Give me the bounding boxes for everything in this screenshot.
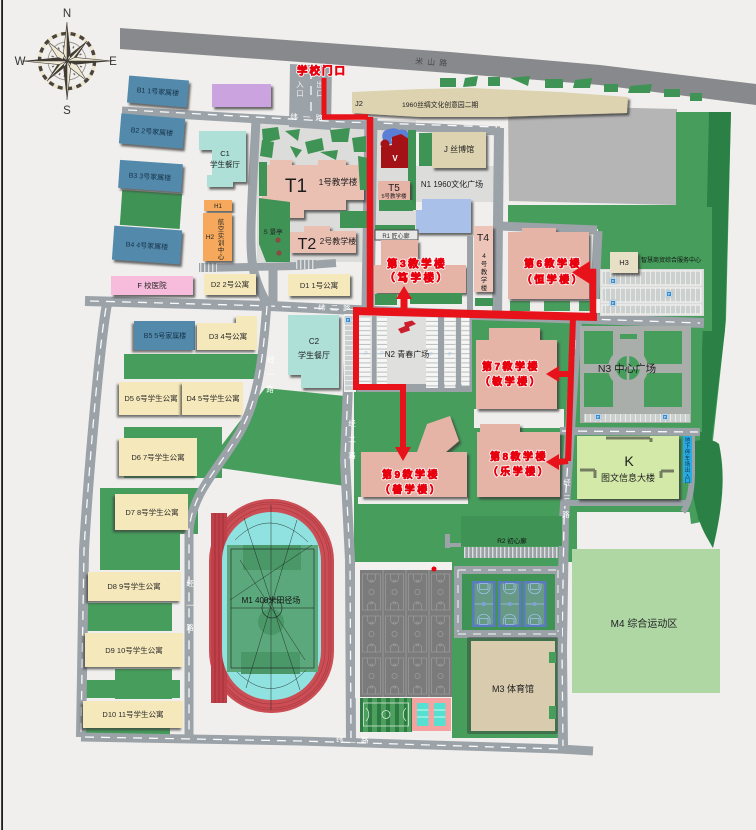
- svg-text:T5: T5: [388, 183, 400, 194]
- svg-text:图文信息大楼: 图文信息大楼: [601, 472, 655, 483]
- svg-text:5号教学楼: 5号教学楼: [381, 192, 407, 200]
- svg-text:（敏学楼）: （敏学楼）: [480, 375, 543, 388]
- svg-text:第7教学楼: 第7教学楼: [482, 360, 540, 373]
- svg-text:路: 路: [348, 450, 356, 460]
- svg-text:第6教学楼: 第6教学楼: [524, 257, 582, 270]
- svg-text:H1: H1: [214, 204, 222, 210]
- svg-text:地: 地: [685, 436, 691, 444]
- svg-text:经: 经: [186, 578, 194, 588]
- svg-text:停: 停: [685, 448, 691, 456]
- svg-text:T2: T2: [298, 236, 317, 253]
- svg-text:一: 一: [267, 370, 275, 379]
- svg-text:N3 中心广场: N3 中心广场: [598, 362, 656, 375]
- svg-text:E: E: [109, 56, 117, 68]
- svg-text:D3 4号公寓: D3 4号公寓: [209, 331, 247, 341]
- svg-text:经: 经: [563, 477, 571, 487]
- svg-text:1960丝绸文化创意园二期: 1960丝绸文化创意园二期: [402, 100, 478, 109]
- svg-text:第3教学楼: 第3教学楼: [387, 257, 447, 270]
- svg-text:航: 航: [218, 217, 225, 226]
- svg-text:口: 口: [685, 478, 691, 485]
- svg-text:（恒学楼）: （恒学楼）: [522, 273, 585, 286]
- svg-text:场: 场: [685, 460, 691, 468]
- svg-text:（善学楼）: （善学楼）: [380, 483, 443, 496]
- svg-text:M4 综合运动区: M4 综合运动区: [611, 617, 678, 630]
- svg-text:入: 入: [296, 80, 304, 89]
- svg-text:路: 路: [186, 622, 194, 632]
- svg-text:D9 10号学生公寓: D9 10号学生公寓: [105, 645, 163, 655]
- svg-text:R2 初心廊: R2 初心廊: [497, 536, 527, 545]
- svg-text:C2: C2: [309, 337, 320, 346]
- svg-text:2号教学楼: 2号教学楼: [320, 236, 356, 246]
- svg-text:V: V: [392, 154, 398, 163]
- svg-text:第8教学楼: 第8教学楼: [490, 450, 548, 463]
- svg-text:4: 4: [482, 253, 486, 260]
- svg-text:C1: C1: [220, 149, 230, 158]
- svg-text:M1 400米田径场: M1 400米田径场: [242, 595, 301, 605]
- svg-text:S: S: [63, 105, 71, 117]
- svg-text:H3: H3: [619, 258, 629, 267]
- svg-text:H2: H2: [206, 234, 215, 241]
- svg-text:D10 11号学生公寓: D10 11号学生公寓: [102, 709, 163, 719]
- svg-text:D6 7号学生公寓: D6 7号学生公寓: [131, 452, 184, 462]
- svg-text:学: 学: [481, 275, 488, 284]
- svg-text:智慧商贸综合服务中心: 智慧商贸综合服务中心: [641, 256, 701, 264]
- svg-text:口: 口: [296, 89, 304, 98]
- svg-text:D8 9号学生公寓: D8 9号学生公寓: [107, 581, 160, 591]
- svg-text:二: 二: [348, 435, 356, 444]
- svg-text:K: K: [624, 453, 634, 469]
- svg-text:空: 空: [218, 224, 224, 233]
- svg-text:楼: 楼: [481, 283, 488, 292]
- svg-text:经: 经: [348, 418, 356, 428]
- svg-text:J 丝博馆: J 丝博馆: [444, 144, 474, 154]
- svg-text:D4 5号学生公寓: D4 5号学生公寓: [186, 393, 239, 403]
- svg-text:号: 号: [481, 260, 488, 268]
- svg-text:D1 1号公寓: D1 1号公寓: [300, 280, 338, 290]
- svg-text:心: 心: [218, 253, 225, 261]
- svg-text:D5 6号学生公寓: D5 6号学生公寓: [124, 393, 177, 403]
- svg-text:T1: T1: [285, 176, 307, 197]
- svg-text:第9教学楼: 第9教学楼: [382, 468, 440, 481]
- svg-text:出: 出: [685, 466, 691, 474]
- svg-text:学生餐厅: 学生餐厅: [210, 159, 240, 169]
- svg-text:教: 教: [481, 267, 488, 276]
- svg-text:N1 1960文化广场: N1 1960文化广场: [421, 179, 483, 189]
- svg-text:下: 下: [685, 443, 691, 450]
- svg-text:学生餐厅: 学生餐厅: [298, 350, 330, 360]
- svg-text:（笃学楼）: （笃学楼）: [385, 271, 450, 284]
- svg-text:R1 匠心廊: R1 匠心廊: [382, 232, 409, 240]
- svg-text:M3 体育馆: M3 体育馆: [492, 683, 534, 694]
- svg-text:路: 路: [562, 509, 570, 519]
- svg-text:训: 训: [218, 239, 224, 247]
- svg-text:路: 路: [266, 384, 274, 394]
- svg-text:1号教学楼: 1号教学楼: [319, 177, 358, 187]
- svg-text:D7 8号学生公寓: D7 8号学生公寓: [125, 507, 178, 517]
- svg-text:B5 5号家属楼: B5 5号家属楼: [144, 331, 186, 340]
- svg-text:N2 青春广场: N2 青春广场: [385, 349, 429, 359]
- svg-text:S 景亭: S 景亭: [263, 227, 283, 236]
- svg-text:车: 车: [685, 454, 691, 462]
- svg-text:N: N: [63, 8, 71, 20]
- svg-text:学校门口: 学校门口: [297, 64, 347, 77]
- svg-text:F 校医院: F 校医院: [137, 280, 167, 290]
- svg-text:W: W: [15, 56, 26, 68]
- svg-text:经: 经: [267, 354, 275, 364]
- svg-text:一: 一: [186, 601, 194, 610]
- svg-text:（乐学楼）: （乐学楼）: [488, 465, 551, 478]
- svg-text:实: 实: [218, 231, 224, 240]
- svg-text:D2 2号公寓: D2 2号公寓: [211, 279, 249, 289]
- svg-text:中: 中: [218, 245, 224, 254]
- svg-text:T4: T4: [477, 232, 489, 244]
- svg-text:J2: J2: [355, 99, 363, 108]
